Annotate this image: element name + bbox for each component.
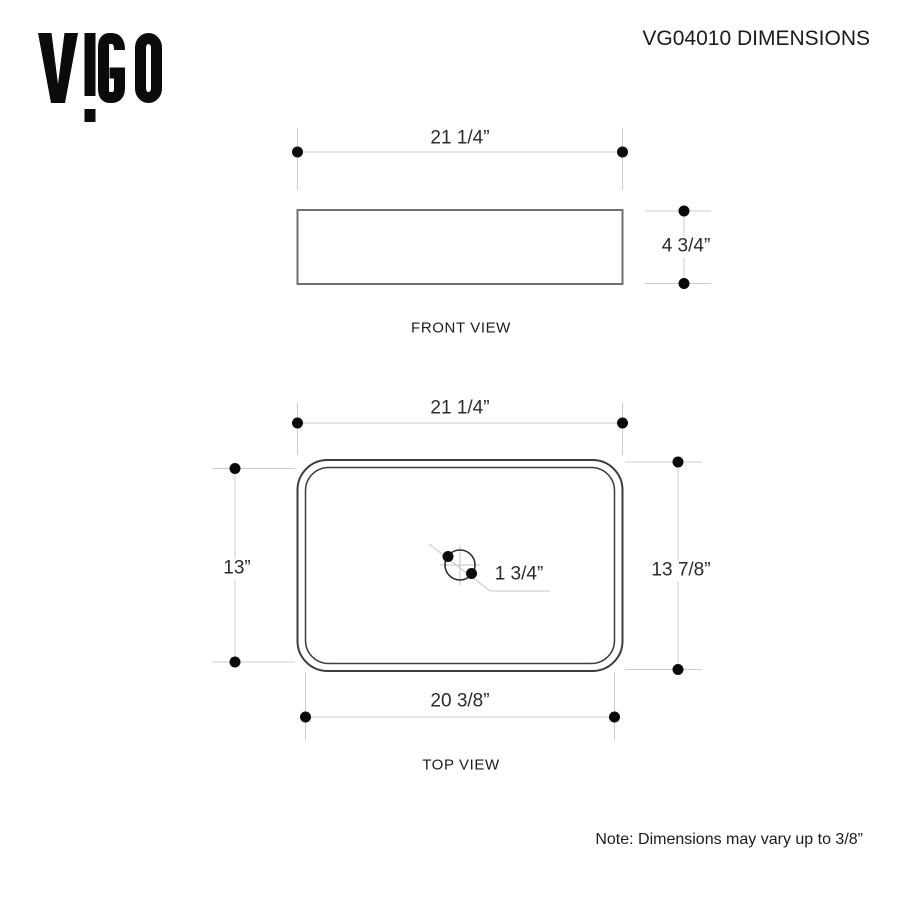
spec-sheet: VG04010 DIMENSIONS bbox=[0, 0, 900, 900]
left-height-dimension-label: 13” bbox=[219, 559, 254, 580]
front-view-caption: FRONT VIEW bbox=[411, 320, 511, 337]
dimension-dot bbox=[300, 712, 311, 723]
dimension-dot bbox=[443, 551, 454, 562]
dimension-dot bbox=[292, 418, 303, 429]
dimension-dot bbox=[673, 457, 684, 468]
dimensions-note: Note: Dimensions may vary up to 3/8” bbox=[595, 831, 863, 849]
front-view-outline bbox=[298, 210, 623, 284]
dimension-dot bbox=[609, 712, 620, 723]
front-width-dimension-label: 21 1/4” bbox=[430, 129, 489, 150]
dimension-dot bbox=[230, 463, 241, 474]
dimension-dot bbox=[617, 418, 628, 429]
front-view-drawing bbox=[292, 128, 711, 289]
dimension-dot bbox=[679, 278, 690, 289]
top-view-drawing bbox=[212, 403, 702, 740]
dimension-dot bbox=[292, 147, 303, 158]
dimension-dot bbox=[466, 568, 477, 579]
bottom-width-dimension-label: 20 3/8” bbox=[430, 692, 489, 713]
top-width-dimension-label: 21 1/4” bbox=[430, 399, 489, 420]
dimension-dot bbox=[679, 206, 690, 217]
dimension-dot bbox=[617, 147, 628, 158]
dimension-dot bbox=[230, 657, 241, 668]
dimension-dot bbox=[673, 664, 684, 675]
right-height-dimension-label: 13 7/8” bbox=[647, 561, 714, 582]
top-view-caption: TOP VIEW bbox=[422, 757, 500, 774]
front-height-dimension-label: 4 3/4” bbox=[658, 237, 715, 258]
drain-dimension-label: 1 3/4” bbox=[495, 565, 544, 586]
